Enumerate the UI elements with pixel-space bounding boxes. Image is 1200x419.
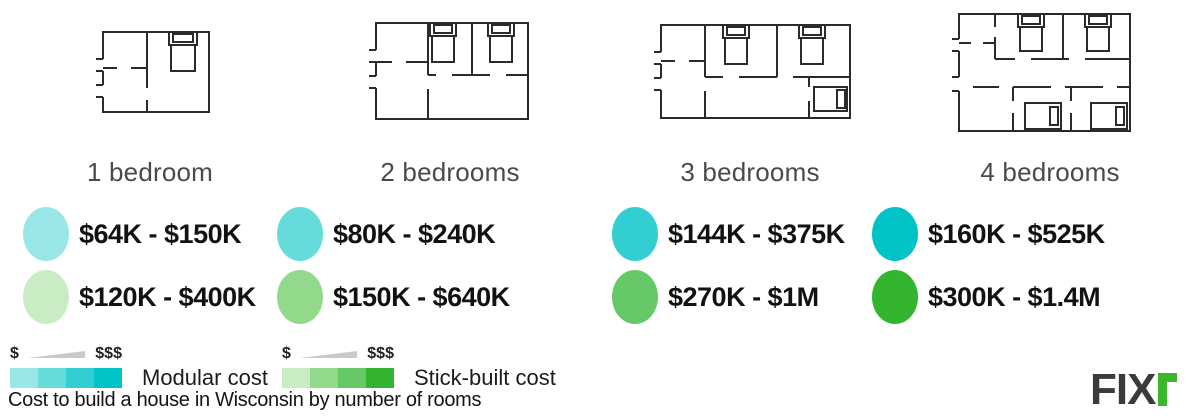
floorplan-3-bedrooms: [653, 24, 852, 119]
cost-range: $300K - $1.4M: [928, 282, 1100, 313]
legend-low-symbol: $: [10, 346, 19, 362]
modular-cost-4-bedrooms: $160K - $525K: [872, 206, 1105, 262]
legend-high-symbol: $$$: [95, 346, 122, 362]
chart-caption: Cost to build a house in Wisconsin by nu…: [8, 389, 481, 412]
cost-range: $270K - $1M: [668, 282, 819, 313]
cost-range: $64K - $150K: [79, 219, 241, 250]
scale-segment: [338, 368, 366, 388]
stick-cost-2-bedrooms: $150K - $640K: [277, 269, 510, 325]
cost-range: $144K - $375K: [668, 219, 845, 250]
cost-wedge-icon: [28, 351, 86, 359]
legend-stick-built: $ $$$ Stick-built cost: [282, 346, 556, 391]
modular-cost-2-bedrooms: $80K - $240K: [277, 206, 495, 262]
modular-cost-1-bedroom: $64K - $150K: [23, 206, 241, 262]
cost-range: $160K - $525K: [928, 219, 1105, 250]
modular-color-dot: [872, 207, 918, 261]
cost-wedge-icon: [300, 351, 358, 359]
plan-label-1-bedroom: 1 bedroom: [40, 157, 260, 188]
scale-segment: [282, 368, 310, 388]
stick-cost-1-bedroom: $120K - $400K: [23, 269, 256, 325]
legend-modular: $ $$$ Modular cost: [10, 346, 268, 391]
floorplan-1-bedroom: [95, 31, 211, 113]
cost-range: $80K - $240K: [333, 219, 495, 250]
modular-cost-3-bedrooms: $144K - $375K: [612, 206, 845, 262]
fixr-logo-r-glyph: [1158, 373, 1177, 406]
modular-color-dot: [23, 207, 69, 261]
stick-cost-3-bedrooms: $270K - $1M: [612, 269, 819, 325]
plan-label-2-bedrooms: 2 bedrooms: [340, 157, 560, 188]
scale-segment: [10, 368, 38, 388]
stick-scale-bar: [282, 368, 394, 388]
stick-color-dot: [277, 270, 323, 324]
stick-cost-4-bedrooms: $300K - $1.4M: [872, 269, 1100, 325]
legend-stick-label: Stick-built cost: [414, 365, 556, 391]
scale-segment: [310, 368, 338, 388]
scale-segment: [38, 368, 66, 388]
scale-segment: [366, 368, 394, 388]
cost-infographic: 1 bedroom 2 bedrooms 3 bedrooms 4 bedroo…: [0, 0, 1200, 419]
scale-segment: [94, 368, 122, 388]
modular-color-dot: [612, 207, 658, 261]
modular-scale-bar: [10, 368, 122, 388]
cost-range: $150K - $640K: [333, 282, 510, 313]
stick-color-dot: [872, 270, 918, 324]
scale-segment: [66, 368, 94, 388]
floorplan-2-bedrooms: [368, 22, 530, 120]
legend-low-symbol: $: [282, 346, 291, 362]
cost-range: $120K - $400K: [79, 282, 256, 313]
floorplan-4-bedrooms: [951, 13, 1132, 132]
plan-label-3-bedrooms: 3 bedrooms: [640, 157, 860, 188]
legend-modular-label: Modular cost: [142, 365, 268, 391]
legend-high-symbol: $$$: [367, 346, 394, 362]
stick-color-dot: [612, 270, 658, 324]
stick-color-dot: [23, 270, 69, 324]
plan-label-4-bedrooms: 4 bedrooms: [940, 157, 1160, 188]
modular-color-dot: [277, 207, 323, 261]
fixr-logo-text: FIX: [1090, 373, 1155, 406]
fixr-logo: FIX: [1090, 373, 1177, 406]
